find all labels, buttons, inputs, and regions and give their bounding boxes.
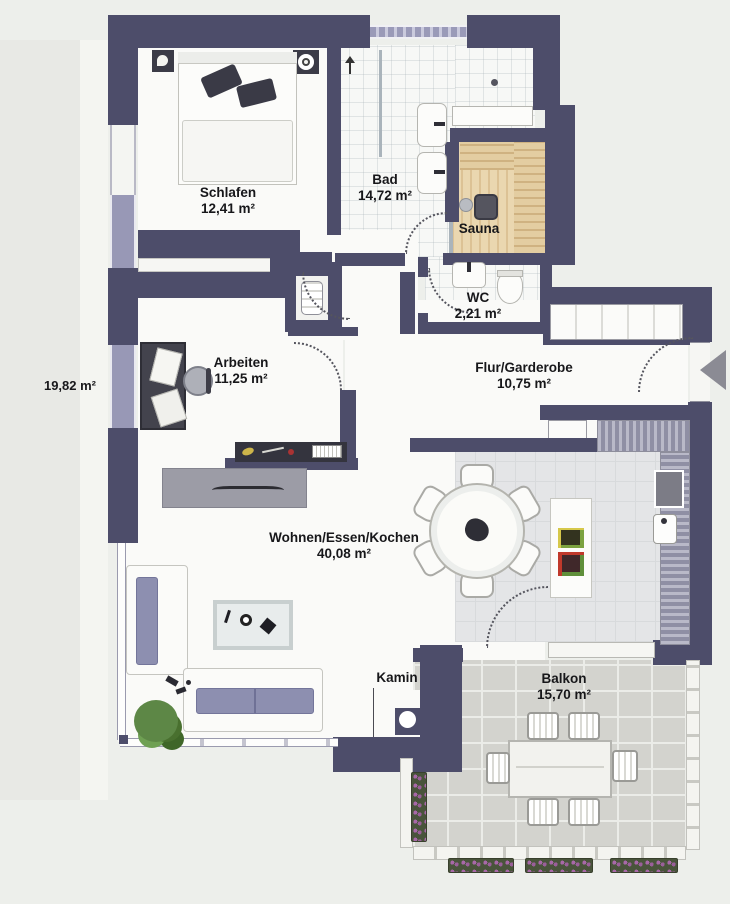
room-name: Wohnen/Essen/Kochen: [269, 530, 419, 545]
balkonstuhl-5: [486, 752, 510, 784]
blumenkasten-1: [448, 858, 514, 873]
bad-counter: [452, 106, 533, 126]
shower-arrow-head-icon: [345, 56, 355, 63]
nachttisch-links-lampe: [157, 55, 168, 66]
bett-kopfteil: [178, 52, 297, 64]
teppich: [213, 600, 293, 650]
room-area: 14,72 m²: [358, 188, 412, 203]
pflanze: [134, 700, 178, 742]
wc-toilette-tank: [497, 270, 523, 277]
kochfeld-1: [558, 528, 584, 548]
sauna-bench-right: [514, 142, 545, 255]
balkonstuhl-6: [612, 750, 638, 782]
kamin-wall-horizontal: [333, 737, 462, 772]
room-name: Flur/Garderobe: [475, 360, 573, 375]
shower-arrow-icon: [349, 62, 351, 74]
wall-top: [108, 15, 370, 48]
label-sauna: Sauna: [459, 221, 500, 237]
blumenkasten-links: [411, 772, 427, 842]
sauna-bench-top: [460, 142, 514, 170]
window-arbeiten-left: [110, 345, 136, 430]
wall-sauna-left: [445, 142, 459, 222]
wall-arbeiten-top: [112, 272, 285, 298]
wall-flur-wohnen: [410, 438, 597, 452]
balkonstuhl-2: [568, 712, 600, 740]
wall-nook-bottom: [288, 327, 358, 336]
wall-balkon-topleft: [413, 648, 463, 662]
wall-flur-top: [543, 287, 712, 300]
kueche-zeile-oben: [597, 420, 690, 452]
label-schlafen: Schlafen 12,41 m²: [200, 185, 256, 217]
tv-geraet: [212, 486, 284, 494]
label-wc: WC 2,21 m²: [455, 290, 502, 322]
outside-strip: [0, 40, 80, 800]
kochinsel: [550, 498, 592, 598]
wall-wc-bottom: [425, 322, 552, 334]
balkonstuhl-3: [527, 798, 559, 826]
feature-name: Kamin: [376, 670, 417, 685]
blumenkasten-2: [525, 858, 593, 873]
kueche-backofen: [654, 470, 684, 508]
sauna-glass-door: [449, 222, 453, 257]
bett-decke: [182, 120, 293, 182]
room-area: 40,08 m²: [317, 546, 371, 561]
wall-top-right: [467, 15, 560, 48]
entry-arrow-icon: [700, 350, 726, 390]
room-area: 2,21 m²: [455, 306, 502, 321]
wall-sauna-top: [450, 128, 545, 142]
kamin-flue: [399, 711, 416, 728]
balkonstuhl-1: [527, 712, 559, 740]
balkon-door-sill: [548, 642, 655, 658]
wall-bad-bottom: [335, 253, 405, 266]
blumenkasten-3: [610, 858, 678, 873]
window-wohnen-left: [117, 543, 126, 740]
shower-glass: [379, 50, 382, 157]
waschbecken-1-tap-icon: [434, 122, 445, 126]
wall-schlafen-bad: [327, 45, 341, 235]
wall-entry-top: [688, 287, 712, 342]
kueche-armatur-icon: [661, 518, 667, 524]
wall-left-3: [108, 428, 138, 543]
sofa-unten-kissen-teilung: [254, 689, 256, 713]
kamin-leader-line: [373, 688, 374, 737]
label-arbeiten: Arbeiten 11,25 m²: [214, 355, 269, 387]
balkon-railing-right: [686, 660, 700, 850]
wall-right-upper-1: [533, 45, 560, 110]
kochfeld-2: [558, 552, 584, 576]
window-corner-post: [119, 735, 128, 744]
window-left-2: [110, 195, 136, 270]
wall-kueche-top: [540, 405, 693, 420]
wall-right-outer: [688, 402, 712, 665]
sofa-links-kissen: [136, 577, 158, 665]
label-flur: Flur/Garderobe 10,75 m²: [475, 360, 573, 392]
wall-nook-flur: [400, 272, 415, 334]
label-balkon: Balkon 15,70 m²: [537, 671, 591, 703]
room-area: 12,41 m²: [201, 201, 255, 216]
nachttisch-rechts-lampe: [298, 54, 314, 70]
label-wohnen: Wohnen/Essen/Kochen 40,08 m²: [269, 530, 419, 562]
room-name: Sauna: [459, 221, 500, 236]
room-name: WC: [467, 290, 490, 305]
sideboard-tastatur: [312, 445, 342, 458]
window-schlafen-left: [110, 125, 136, 195]
balkonstuhl-4: [568, 798, 600, 826]
label-outside-area: 19,82 m²: [44, 378, 96, 394]
label-bad: Bad 14,72 m²: [358, 172, 412, 204]
room-name: Arbeiten: [214, 355, 269, 370]
room-area: 11,25 m²: [214, 371, 267, 386]
wall-wc-left-b: [418, 313, 428, 334]
room-name: Bad: [372, 172, 398, 187]
outside-area-value: 19,82 m²: [44, 378, 96, 393]
room-area: 15,70 m²: [537, 687, 591, 702]
wall-wc-left-a: [418, 257, 428, 277]
teppich-deko-schale: [240, 614, 252, 626]
buerostuhl-lehne: [206, 368, 211, 394]
balkontisch-linie: [516, 766, 604, 768]
room-name: Schlafen: [200, 185, 256, 200]
wall-right-upper-2: [545, 105, 575, 262]
outside-strip-light: [80, 40, 108, 800]
floor-plan: Schlafen 12,41 m² Bad 14,72 m² Sauna WC …: [0, 0, 730, 904]
label-kamin: Kamin: [376, 670, 417, 686]
sauna-eimer: [459, 198, 473, 212]
bad-light-dot: [491, 79, 498, 86]
sideboard-deko-rot: [288, 449, 294, 455]
garderobe-schrank: [550, 304, 683, 340]
window-bad-top: [370, 25, 467, 39]
room-area: 10,75 m²: [497, 376, 551, 391]
balkontisch: [508, 740, 612, 798]
room-name: Balkon: [541, 671, 586, 686]
sauna-ofen: [474, 194, 498, 220]
beistell-deko-punkt: [186, 680, 191, 685]
waschbecken-2-tap-icon: [434, 170, 445, 174]
